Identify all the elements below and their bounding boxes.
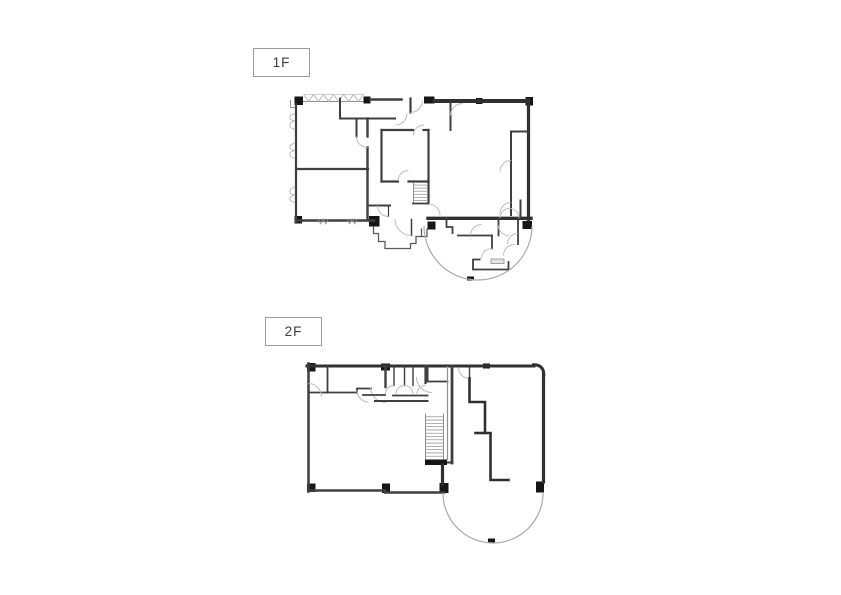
door-arc bbox=[459, 368, 470, 379]
floor-plan-2f bbox=[307, 363, 544, 543]
floor-label-text: 2F bbox=[285, 324, 303, 339]
door-arc bbox=[378, 206, 389, 217]
door-arc bbox=[500, 209, 510, 219]
room-wall bbox=[357, 389, 371, 393]
entry-step bbox=[491, 259, 504, 264]
door-arc bbox=[357, 137, 368, 148]
door-arc bbox=[417, 386, 426, 395]
window-symbol bbox=[290, 114, 295, 130]
door-arc bbox=[386, 386, 395, 395]
floor-plans-canvas bbox=[0, 0, 841, 595]
door-arc bbox=[395, 219, 412, 236]
floor-plan-page: 1F 2F bbox=[0, 0, 841, 595]
terrace-arc bbox=[443, 493, 543, 543]
door-arc bbox=[471, 225, 482, 236]
staircase bbox=[414, 185, 429, 200]
door-arc bbox=[309, 384, 322, 397]
door-arc bbox=[504, 245, 515, 256]
door-arc bbox=[451, 104, 463, 116]
vestibule-wall bbox=[447, 219, 453, 234]
floor-label-2f: 2F bbox=[265, 317, 322, 346]
window-symbol bbox=[290, 187, 295, 203]
door-arc bbox=[357, 391, 369, 403]
door-arc bbox=[398, 171, 409, 182]
window-zigzag bbox=[304, 95, 364, 102]
terrace-tick bbox=[488, 539, 495, 543]
door-arc bbox=[500, 161, 511, 172]
door-arc bbox=[411, 101, 423, 113]
floor-label-text: 1F bbox=[273, 55, 291, 70]
door-arc bbox=[429, 204, 441, 216]
window-symbol bbox=[290, 143, 295, 159]
wall-column bbox=[523, 221, 533, 229]
door-arc bbox=[499, 226, 509, 236]
porch-steps bbox=[374, 227, 422, 249]
floor-plan-1f bbox=[290, 95, 533, 281]
door-arc bbox=[405, 386, 414, 395]
wall-column bbox=[428, 222, 436, 230]
floor-label-1f: 1F bbox=[253, 48, 310, 77]
stepped-wall bbox=[470, 379, 509, 481]
door-arc bbox=[481, 249, 492, 260]
door-arc bbox=[417, 377, 433, 393]
staircase bbox=[426, 417, 444, 456]
door-arc bbox=[396, 386, 405, 395]
door-arc bbox=[396, 114, 408, 126]
door-arc bbox=[508, 234, 519, 245]
